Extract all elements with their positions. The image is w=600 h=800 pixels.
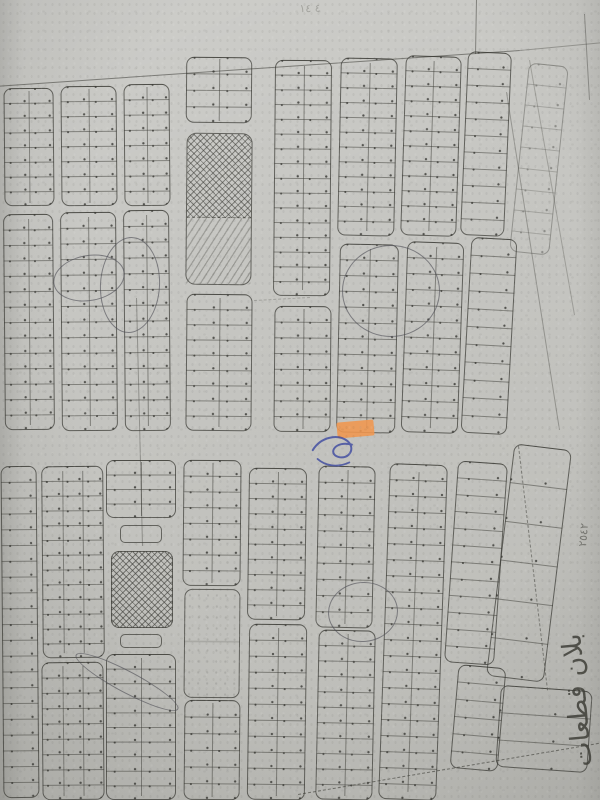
faint-top-marks: ٤ ١٤ [255, 1, 365, 16]
plot-number-label: ٢٥٤٢ [574, 503, 594, 568]
plan-title-vertical: بلان قطعات [553, 591, 600, 800]
cadastral-plan-photo: بلان قطعات ٢٥٤٢ ٤ ١٤ [0, 0, 600, 800]
labels: بلان قطعات ٢٥٤٢ ٤ ١٤ [0, 0, 600, 800]
